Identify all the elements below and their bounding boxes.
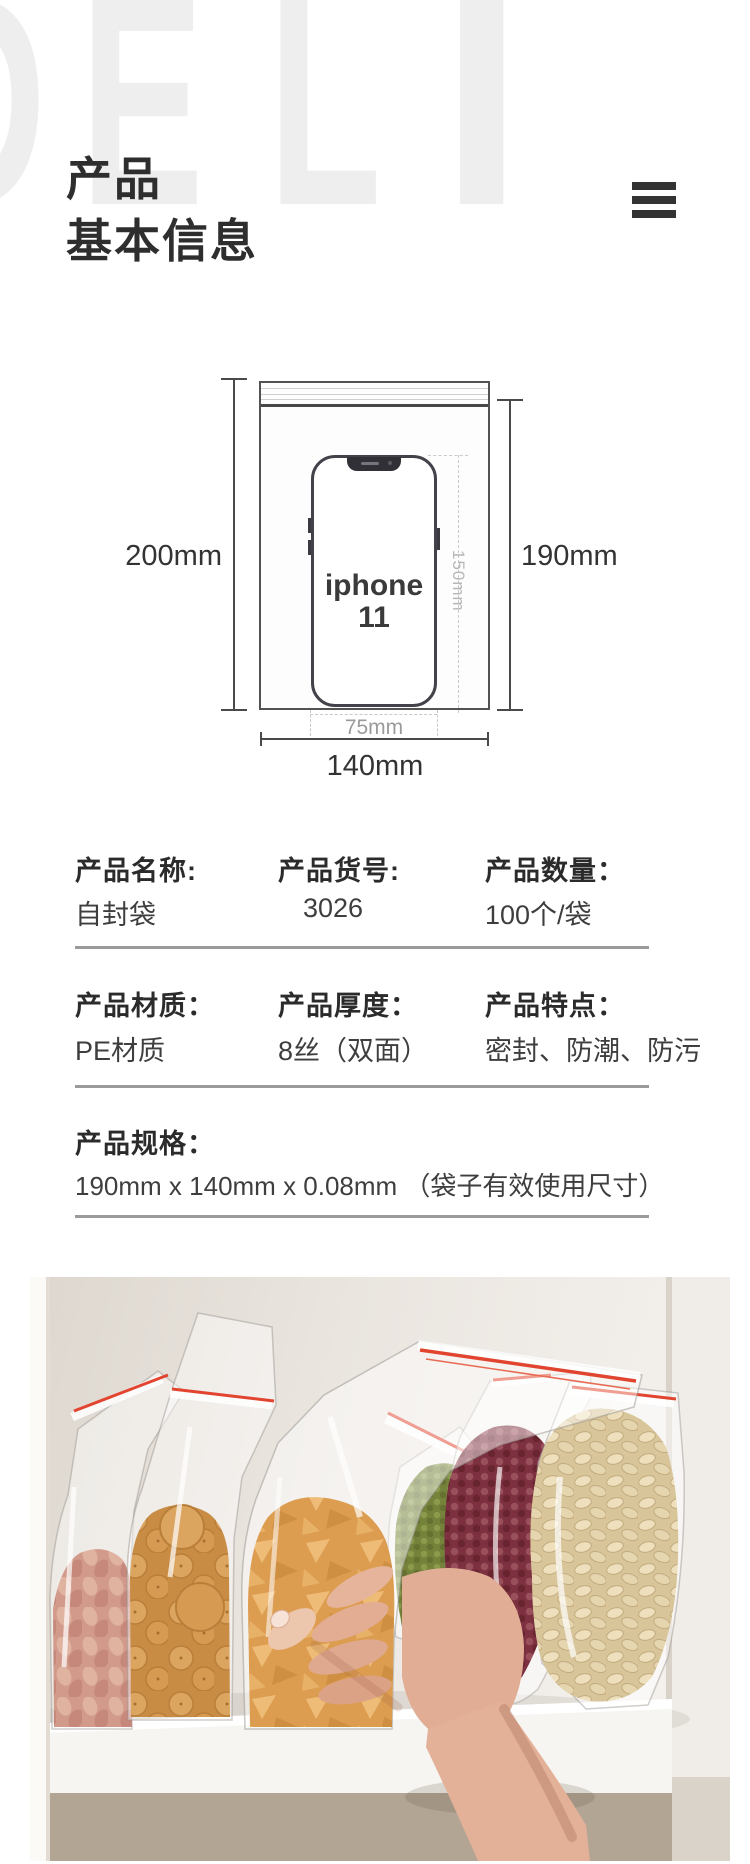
spec-value-material: PE材质: [75, 1029, 165, 1068]
spec-value-product-number: 3026: [303, 893, 363, 924]
spec-value-thickness: 8丝（双面）: [278, 1029, 428, 1068]
dim-label-inner-height: 190mm: [521, 540, 641, 573]
dashed-line-phone-width: [310, 714, 437, 715]
dimension-cap: [260, 732, 262, 746]
hamburger-menu-icon[interactable]: [632, 182, 676, 218]
page-title: 产品 基本信息: [66, 148, 258, 272]
spec-label-product-quantity: 产品数量：: [485, 849, 625, 888]
watermark-letter-l: L: [268, 0, 382, 250]
spec-label-product-name: 产品名称:: [75, 849, 197, 888]
iphone-speaker: [361, 462, 379, 465]
bag-zipper-line: [261, 399, 488, 400]
hamburger-bar: [632, 210, 676, 218]
dimension-line-inner-height: [509, 400, 511, 710]
dim-label-total-height: 200mm: [104, 540, 222, 573]
iphone-volume-button: [308, 540, 311, 555]
table-divider: [75, 1215, 649, 1218]
spec-value-features: 密封、防潮、防污: [485, 1029, 701, 1068]
spec-label-product-number: 产品货号:: [278, 849, 400, 888]
dimension-line-bag-width: [261, 738, 489, 740]
page-title-line2: 基本信息: [66, 210, 258, 272]
hamburger-bar: [632, 196, 676, 204]
iphone-power-button: [437, 528, 440, 550]
dimension-line-total-height: [233, 379, 235, 710]
dimension-cap: [497, 399, 523, 401]
bag-zipper-line: [261, 388, 488, 389]
iphone-volume-button: [308, 518, 311, 533]
product-photo: [30, 1277, 730, 1861]
dim-label-phone-width: 75mm: [317, 716, 431, 740]
dimension-cap: [221, 709, 247, 711]
table-divider: [75, 1085, 649, 1088]
dimension-cap: [487, 732, 489, 746]
product-info-page: D E L I 产品 基本信息 200mm 190mm i: [0, 0, 750, 1864]
iphone-label-line1: iphone: [311, 570, 437, 602]
iphone-label: iphone 11: [311, 570, 437, 634]
spec-value-size: 190mm x 140mm x 0.08mm （袋子有效使用尺寸）: [75, 1166, 664, 1203]
spec-label-thickness: 产品厚度：: [278, 984, 418, 1023]
table-divider: [75, 946, 649, 949]
iphone-label-line2: 11: [311, 602, 437, 634]
cabinet-side-panel: [30, 1277, 46, 1861]
page-title-line1: 产品: [66, 148, 258, 210]
spec-label-size: 产品规格：: [75, 1122, 215, 1161]
iphone-notch: [347, 457, 401, 471]
watermark-letter-d: D: [0, 0, 46, 250]
watermark-letter-i: I: [440, 0, 523, 250]
dim-label-phone-height: 150mm: [448, 550, 468, 612]
hamburger-bar: [632, 182, 676, 190]
iphone-camera-dot: [388, 461, 392, 465]
bag-zipper-line: [261, 394, 488, 395]
bag-zipper-seal: [261, 404, 488, 407]
spec-label-material: 产品材质：: [75, 984, 215, 1023]
dim-label-bag-width: 140mm: [313, 750, 437, 783]
spec-value-product-quantity: 100个/袋: [485, 893, 592, 932]
dashed-line-phone-right: [437, 710, 438, 736]
dimension-cap: [497, 709, 523, 711]
dashed-line-phone-top: [428, 455, 468, 456]
spec-value-product-name: 自封袋: [75, 893, 156, 932]
spec-label-features: 产品特点：: [485, 984, 625, 1023]
dimension-cap: [221, 378, 247, 380]
